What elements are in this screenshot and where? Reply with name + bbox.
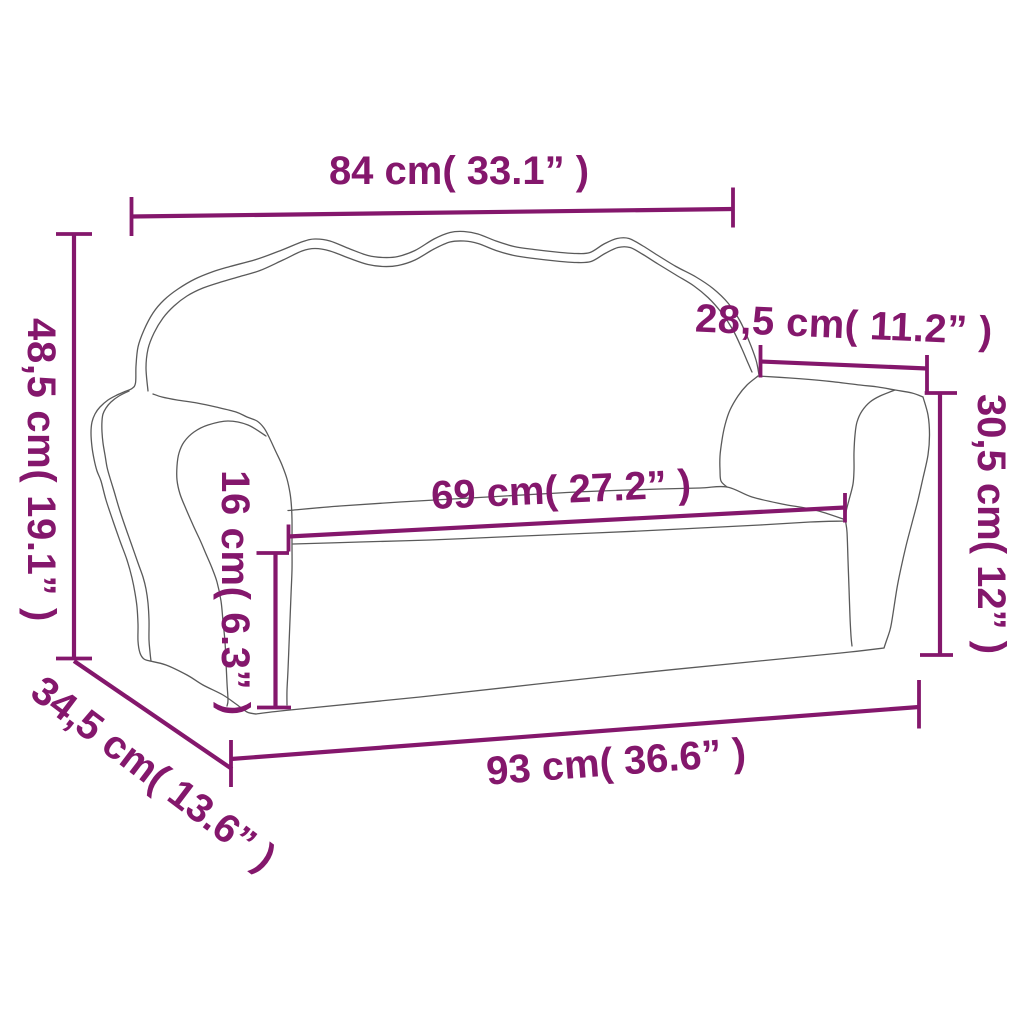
- svg-text:84 cm( 33.1” ): 84 cm( 33.1” ): [329, 149, 589, 193]
- svg-text:93 cm( 36.6” ): 93 cm( 36.6” ): [485, 730, 748, 793]
- svg-text:30,5 cm( 12” ): 30,5 cm( 12” ): [969, 394, 1013, 654]
- svg-text:48,5 cm( 19.1” ): 48,5 cm( 19.1” ): [19, 318, 63, 622]
- svg-text:69 cm( 27.2” ): 69 cm( 27.2” ): [430, 462, 692, 518]
- svg-text:28,5 cm( 11.2” ): 28,5 cm( 11.2” ): [694, 297, 993, 354]
- svg-text:16 cm( 6.3” ): 16 cm( 6.3” ): [213, 470, 257, 716]
